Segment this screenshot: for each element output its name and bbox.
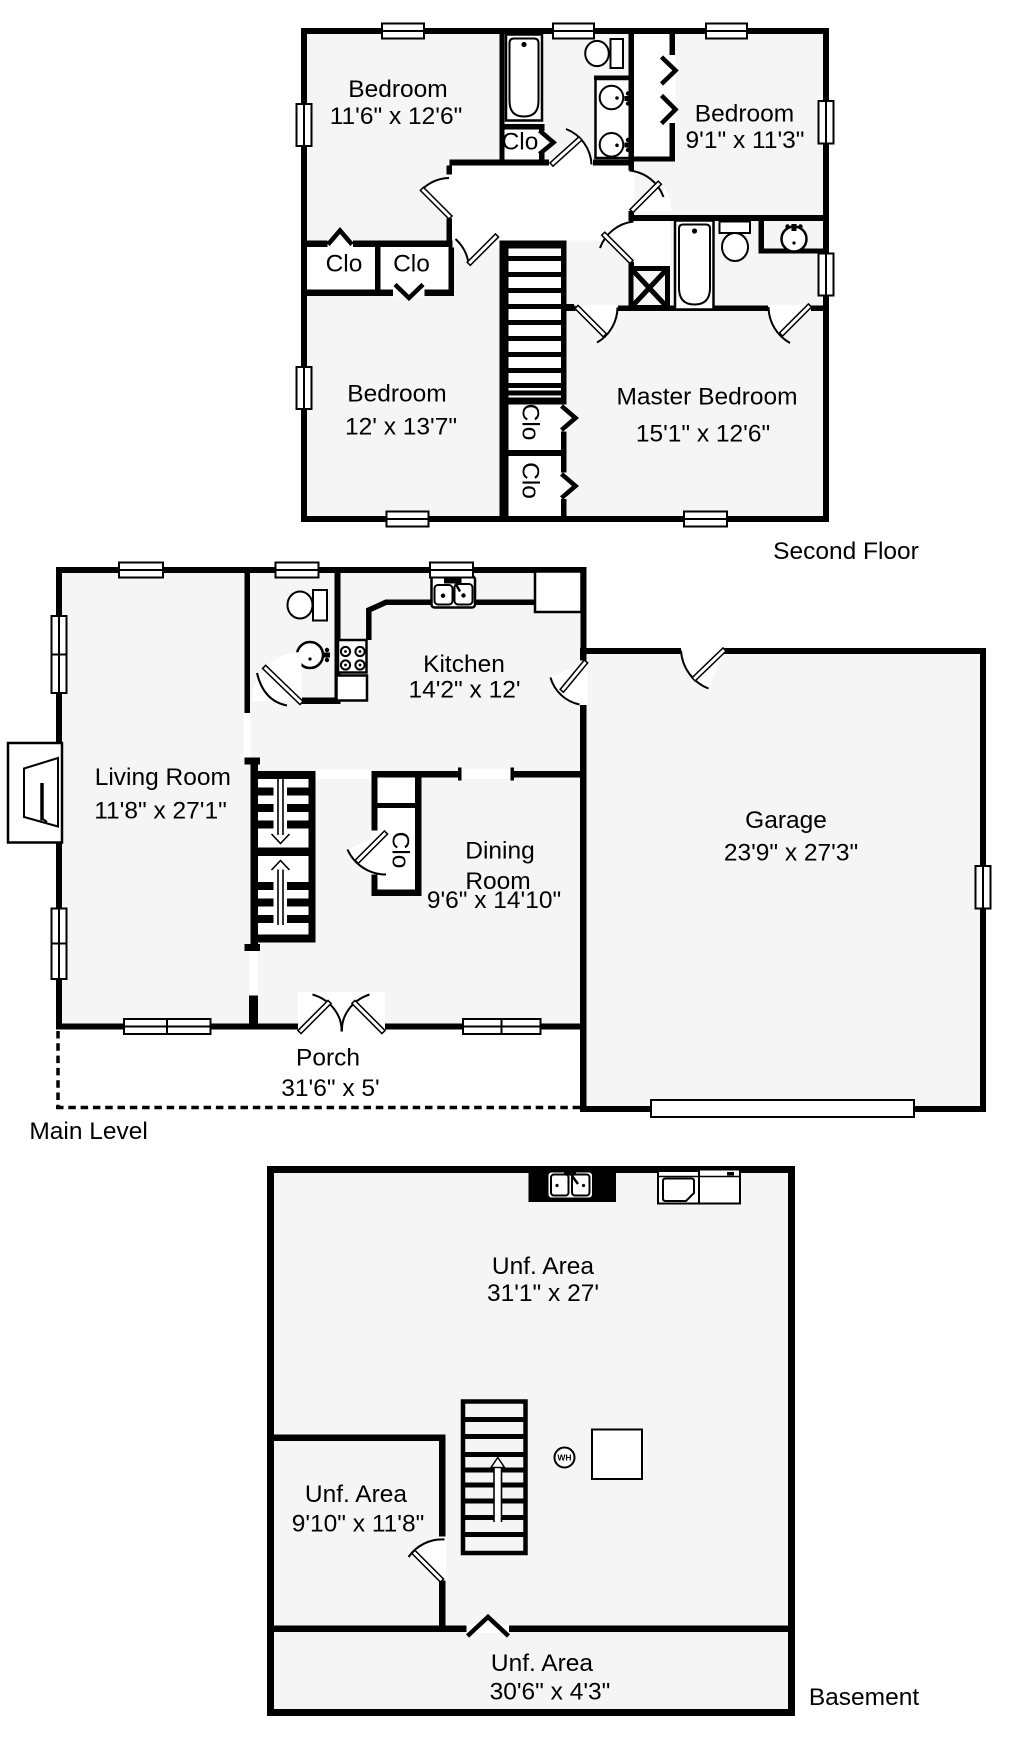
svg-text:Bedroom: Bedroom bbox=[347, 381, 446, 408]
svg-text:Second Floor: Second Floor bbox=[773, 538, 919, 565]
svg-text:Porch: Porch bbox=[296, 1045, 360, 1072]
svg-text:15'1" x 12'6": 15'1" x 12'6" bbox=[636, 421, 770, 448]
svg-text:Clo: Clo bbox=[326, 251, 363, 278]
svg-text:23'9" x 27'3": 23'9" x 27'3" bbox=[724, 840, 858, 867]
svg-text:Master Bedroom: Master Bedroom bbox=[616, 383, 797, 410]
svg-text:Bedroom: Bedroom bbox=[348, 76, 447, 103]
svg-text:Unf. Area: Unf. Area bbox=[492, 1253, 595, 1280]
svg-text:Basement: Basement bbox=[809, 1684, 920, 1711]
svg-text:Clo: Clo bbox=[517, 404, 544, 441]
svg-text:Main Level: Main Level bbox=[29, 1118, 147, 1145]
svg-text:12' x 13'7": 12' x 13'7" bbox=[345, 414, 457, 441]
svg-text:9'6" x 14'10": 9'6" x 14'10" bbox=[427, 887, 561, 914]
svg-text:Garage: Garage bbox=[745, 807, 827, 834]
svg-text:14'2" x 12': 14'2" x 12' bbox=[408, 677, 520, 704]
svg-text:30'6" x 4'3": 30'6" x 4'3" bbox=[490, 1679, 611, 1706]
svg-text:Bedroom: Bedroom bbox=[695, 100, 794, 127]
svg-text:Dining: Dining bbox=[465, 838, 534, 865]
svg-text:Unf. Area: Unf. Area bbox=[491, 1650, 594, 1677]
svg-text:Unf. Area: Unf. Area bbox=[305, 1481, 408, 1508]
svg-text:9'1" x 11'3": 9'1" x 11'3" bbox=[686, 127, 805, 154]
svg-text:11'8" x 27'1": 11'8" x 27'1" bbox=[94, 798, 227, 825]
svg-text:Clo: Clo bbox=[393, 251, 430, 278]
svg-text:9'10" x 11'8": 9'10" x 11'8" bbox=[292, 1511, 425, 1538]
svg-text:Living Room: Living Room bbox=[95, 764, 231, 791]
svg-text:Clo: Clo bbox=[387, 832, 414, 869]
svg-text:Kitchen: Kitchen bbox=[423, 651, 505, 678]
svg-text:11'6" x 12'6": 11'6" x 12'6" bbox=[330, 103, 463, 130]
svg-text:Clo: Clo bbox=[517, 462, 544, 499]
svg-text:31'6" x 5': 31'6" x 5' bbox=[281, 1075, 379, 1102]
svg-text:WH: WH bbox=[557, 1453, 571, 1463]
svg-text:Clo: Clo bbox=[502, 129, 539, 156]
svg-text:31'1" x 27': 31'1" x 27' bbox=[487, 1280, 599, 1307]
